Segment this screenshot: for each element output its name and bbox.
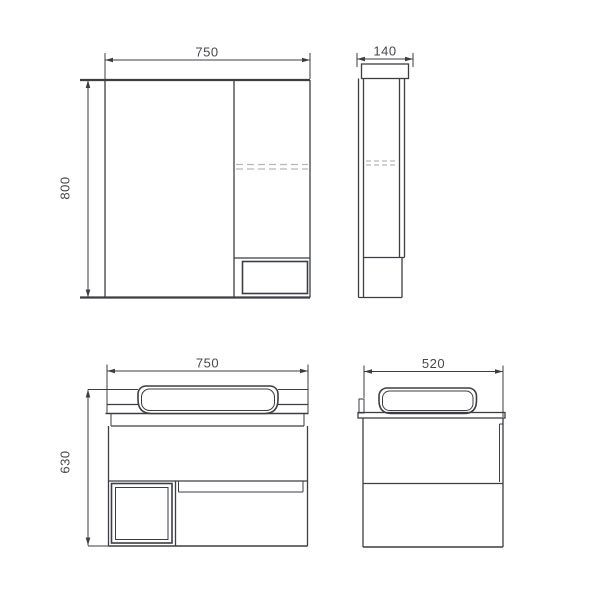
arrowhead-up-icon [86, 80, 91, 88]
arrowhead-down-icon [86, 538, 91, 546]
width-dimension: 750 [105, 45, 310, 80]
door-front-outer [112, 484, 173, 544]
dimension-label: 630 [58, 450, 73, 473]
arrowhead-left-icon [107, 369, 115, 374]
backsplash-edge [359, 399, 364, 413]
top-panel [362, 64, 409, 79]
arrowhead-up-icon [86, 390, 91, 398]
height-dimension: 800 [58, 80, 91, 298]
sink-basin [138, 386, 278, 414]
height-dimension: 630 [58, 390, 109, 547]
door-front-inner [116, 488, 169, 540]
vanity-side-view: 520 [358, 356, 505, 547]
sink-basin-profile [379, 388, 477, 414]
arrowhead-right-icon [405, 57, 413, 62]
arrowhead-left-icon [357, 57, 365, 62]
arrowhead-left-icon [364, 369, 372, 374]
arrowhead-left-icon [105, 58, 113, 63]
dimension-label: 800 [58, 176, 73, 199]
mirror-cabinet-side-view: 140 [357, 44, 413, 298]
dimension-label: 140 [373, 44, 396, 59]
arrowhead-right-icon [300, 369, 308, 374]
dimension-label: 750 [195, 45, 218, 60]
arrowhead-right-icon [495, 369, 503, 374]
arrowhead-down-icon [86, 290, 91, 298]
arrowhead-right-icon [302, 58, 310, 63]
storage-drawer-front [243, 262, 308, 294]
dimension-label: 750 [196, 356, 219, 371]
mirror-cabinet-front-view: 750 800 [58, 45, 311, 298]
vanity-front-view: 750 630 [58, 356, 309, 547]
dimension-label: 520 [422, 356, 445, 371]
dimension-drawing-canvas: 750 800 140 [0, 0, 600, 600]
